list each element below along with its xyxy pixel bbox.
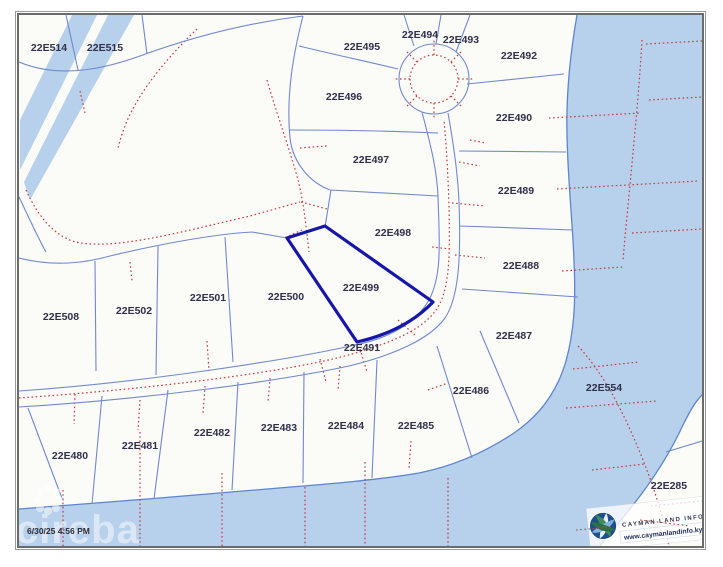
parcel-label-22E508[interactable]: 22E508	[43, 311, 79, 323]
map-timestamp: 6/30/25 4:56 PM	[27, 526, 90, 536]
parcel-label-22E490[interactable]: 22E490	[496, 112, 532, 124]
parcel-label-22E483[interactable]: 22E483	[261, 422, 297, 434]
parcel-label-22E493[interactable]: 22E493	[443, 34, 479, 46]
parcel-label-22E494[interactable]: 22E494	[402, 29, 438, 41]
parcel-label-22E502[interactable]: 22E502	[116, 305, 152, 317]
parcel-label-22E554[interactable]: 22E554	[586, 382, 622, 394]
parcel-label-22E486[interactable]: 22E486	[453, 385, 489, 397]
parcel-label-22E498[interactable]: 22E498	[375, 227, 411, 239]
parcel-label-22E499[interactable]: 22E499	[343, 282, 379, 294]
parcel-label-22E495[interactable]: 22E495	[344, 41, 380, 53]
parcel-label-22E480[interactable]: 22E480	[52, 450, 88, 462]
parcel-label-22E497[interactable]: 22E497	[353, 154, 389, 166]
parcel-label-22E491[interactable]: 22E491	[344, 342, 380, 354]
parcel-label-22E481[interactable]: 22E481	[122, 440, 158, 452]
parcel-label-22E484[interactable]: 22E484	[328, 420, 364, 432]
parcel-label-22E485[interactable]: 22E485	[398, 420, 434, 432]
parcel-label-22E492[interactable]: 22E492	[501, 50, 537, 62]
parcel-label-22E285[interactable]: 22E285	[651, 480, 687, 492]
parcel-label-22E496[interactable]: 22E496	[326, 91, 362, 103]
parcel-label-22E515[interactable]: 22E515	[87, 42, 123, 54]
map-page: 22E51422E51522E49522E49422E49322E49222E4…	[0, 0, 723, 567]
parcel-label-22E500[interactable]: 22E500	[268, 291, 304, 303]
parcel-label-22E501[interactable]: 22E501	[190, 292, 226, 304]
parcel-label-22E514[interactable]: 22E514	[31, 42, 67, 54]
parcel-label-22E489[interactable]: 22E489	[498, 185, 534, 197]
parcel-label-22E482[interactable]: 22E482	[194, 427, 230, 439]
map-canvas[interactable]: 22E51422E51522E49522E49422E49322E49222E4…	[0, 0, 723, 567]
parcel-label-22E487[interactable]: 22E487	[496, 330, 532, 342]
parcel-label-22E488[interactable]: 22E488	[503, 260, 539, 272]
